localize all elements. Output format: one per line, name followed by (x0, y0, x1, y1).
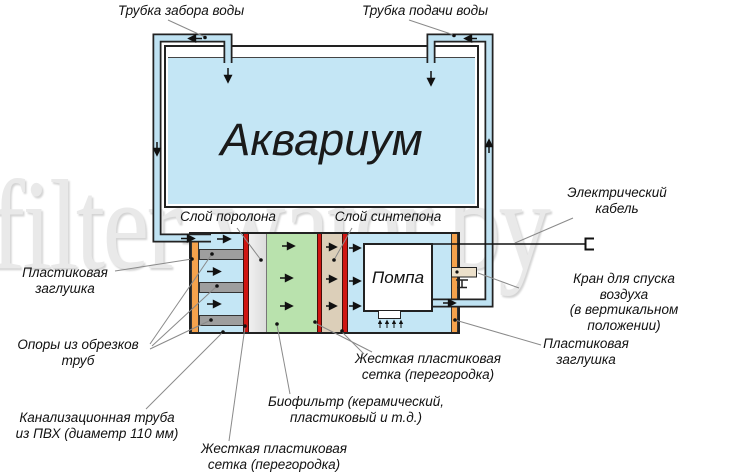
aquarium-filter-diagram: filter-water.by Аквариум Помпа (0, 0, 736, 474)
label-supply-tube: Трубка подачи воды (362, 3, 488, 19)
label-intake-tube: Трубка забора воды (118, 3, 244, 19)
plug-icon (586, 239, 595, 250)
label-synthetic-layer: Слой синтепона (335, 209, 441, 225)
pump-suction-arrows (380, 321, 401, 328)
air-valve-icon (452, 268, 477, 288)
flow-arrows (157, 39, 489, 307)
label-air-valve: Кран для спуска воздуха (в вертикальном … (568, 271, 680, 333)
intake-pipe (157, 38, 228, 238)
label-pipe-supports: Опоры из обрезков труб (17, 337, 138, 368)
electric-cable-line (433, 239, 594, 250)
pointer-lines (115, 20, 573, 441)
supply-pipe (431, 38, 489, 303)
label-mesh-right: Жесткая пластиковая сетка (перегородка) (355, 351, 501, 382)
label-foam-layer: Слой поролона (180, 209, 276, 225)
label-plastic-plug-left: Пластиковая заглушка (22, 265, 108, 296)
label-plastic-plug-right: Пластиковая заглушка (543, 336, 629, 367)
label-mesh-bottom: Жесткая пластиковая сетка (перегородка) (201, 441, 347, 472)
label-electric-cable: Электрический кабель (567, 185, 667, 216)
label-sewer-pipe: Канализационная труба из ПВХ (диаметр 11… (16, 410, 179, 441)
label-biofilter: Биофильтр (керамический, пластиковый и т… (268, 394, 444, 425)
pointer-dots (190, 34, 458, 334)
